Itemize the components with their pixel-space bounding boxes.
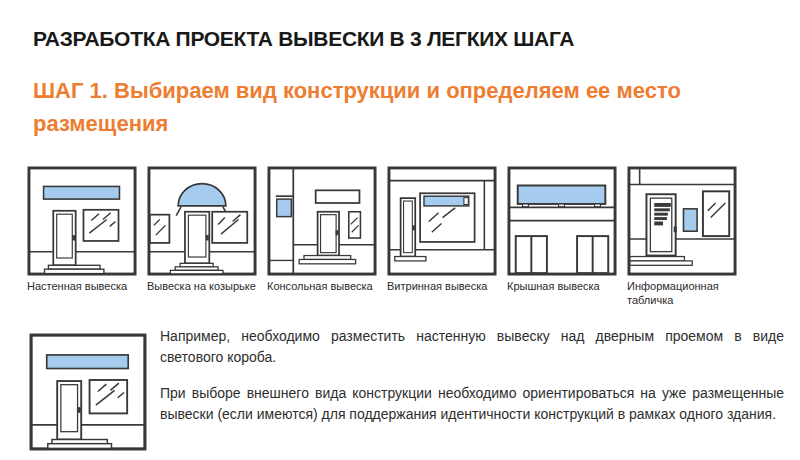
- sign-type-label: Информационная табличка: [627, 280, 737, 308]
- example-figure: [29, 333, 147, 451]
- sign-type-label: Настенная вывеска: [27, 280, 137, 294]
- sign-type-label: Консольная вывеска: [267, 280, 377, 294]
- sign-type-canopy: Вывеска на козырьке: [147, 166, 257, 308]
- storefront-window-sign-icon: [387, 166, 497, 276]
- sign-types-row: Настенная вывеска: [27, 166, 737, 308]
- page: РАЗРАБОТКА ПРОЕКТА ВЫВЕСКИ В 3 ЛЕГКИХ ША…: [0, 0, 800, 460]
- sign-type-roof: Крышная вывеска: [507, 166, 617, 308]
- example-paragraph-1: Например, необходимо разместить настенну…: [160, 326, 784, 368]
- page-title: РАЗРАБОТКА ПРОЕКТА ВЫВЕСКИ В 3 ЛЕГКИХ ША…: [33, 27, 574, 51]
- sign-type-wall: Настенная вывеска: [27, 166, 137, 308]
- storefront-roof-sign-icon: [507, 166, 617, 276]
- storefront-console-sign-icon: [267, 166, 377, 276]
- sign-type-label: Витринная вывеска: [387, 280, 497, 294]
- example-paragraph-2: При выборе внешнего вида конструкции нео…: [160, 383, 784, 425]
- sign-type-window: Витринная вывеска: [387, 166, 497, 308]
- sign-type-label: Крышная вывеска: [507, 280, 617, 294]
- storefront-info-plaque-icon: [627, 166, 737, 276]
- storefront-wall-sign-icon: [29, 333, 147, 451]
- storefront-wall-sign-icon: [27, 166, 137, 276]
- sign-type-console: Консольная вывеска: [267, 166, 377, 308]
- storefront-canopy-sign-icon: [147, 166, 257, 276]
- sign-type-info-plaque: Информационная табличка: [627, 166, 737, 308]
- step-1-heading: ШАГ 1. Выбираем вид конструкции и опреде…: [33, 74, 733, 140]
- sign-type-label: Вывеска на козырьке: [147, 280, 257, 294]
- example-text: Например, необходимо разместить настенну…: [160, 326, 784, 425]
